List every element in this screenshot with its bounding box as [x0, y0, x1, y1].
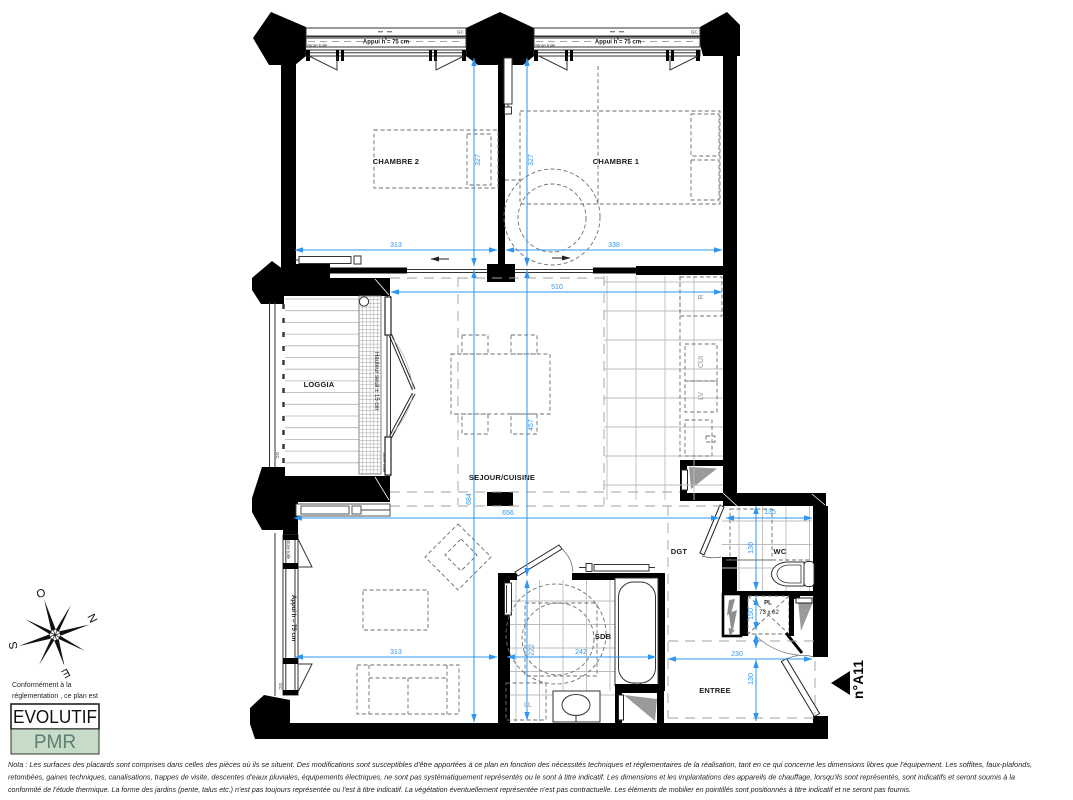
- svg-text:DGT: DGT: [671, 547, 688, 556]
- svg-text:Store toile: Store toile: [286, 539, 291, 560]
- svg-text:Store toile: Store toile: [307, 43, 328, 48]
- svg-text:R: R: [698, 294, 705, 299]
- svg-text:656: 656: [502, 510, 514, 517]
- svg-text:GC: GC: [275, 452, 280, 460]
- svg-text:327: 327: [528, 154, 535, 166]
- svg-text:Store toile: Store toile: [535, 43, 556, 48]
- svg-text:684: 684: [466, 493, 473, 505]
- svg-text:135: 135: [764, 509, 776, 516]
- svg-text:CHAMBRE 2: CHAMBRE 2: [373, 157, 419, 166]
- svg-text:SEJOUR/CUISINE: SEJOUR/CUISINE: [469, 473, 535, 482]
- svg-text:LL: LL: [524, 702, 532, 709]
- svg-text:LOGGIA: LOGGIA: [304, 380, 335, 389]
- svg-text:Conformément à la: Conformément à la: [12, 682, 72, 689]
- svg-text:EVOLUTIF: EVOLUTIF: [13, 707, 97, 727]
- svg-text:GC: GC: [457, 30, 465, 35]
- svg-text:150: 150: [748, 608, 755, 620]
- svg-text:WC: WC: [774, 547, 787, 556]
- svg-text:222: 222: [529, 644, 536, 656]
- svg-text:327: 327: [475, 154, 482, 166]
- svg-text:CUI: CUI: [698, 356, 705, 368]
- svg-text:Hauteur seuil ± 15 cm: Hauteur seuil ± 15 cm: [373, 352, 379, 410]
- svg-text:CHAMBRE 1: CHAMBRE 1: [593, 157, 639, 166]
- svg-text:Nota : Les surfaces des placar: Nota : Les surfaces des placards sont co…: [8, 760, 1032, 769]
- svg-text:conformité de l'étude thermiqu: conformité de l'étude thermique. La form…: [8, 785, 911, 794]
- svg-text:PL: PL: [764, 601, 772, 607]
- svg-text:Appui h = 75 cm: Appui h = 75 cm: [363, 40, 409, 46]
- svg-text:LV: LV: [698, 392, 705, 400]
- svg-text:SDB: SDB: [595, 632, 612, 641]
- svg-text:313: 313: [390, 649, 402, 656]
- svg-text:retombées, gaines techniques,: retombées, gaines techniques, canalisati…: [8, 773, 1015, 782]
- svg-text:ENTREE: ENTREE: [699, 686, 731, 695]
- svg-text:130: 130: [748, 542, 755, 554]
- svg-text:242: 242: [575, 649, 587, 656]
- svg-text:457: 457: [528, 419, 535, 431]
- svg-text:GC: GC: [691, 30, 699, 35]
- svg-text:313: 313: [390, 242, 402, 249]
- svg-text:73 x 62: 73 x 62: [759, 610, 779, 616]
- svg-text:Appui h = 75 cm: Appui h = 75 cm: [595, 40, 641, 46]
- svg-text:130: 130: [748, 673, 755, 685]
- svg-text:réglementation , ce plan est: réglementation , ce plan est: [12, 693, 98, 700]
- svg-text:510: 510: [551, 284, 563, 291]
- svg-text:PMR: PMR: [34, 732, 76, 753]
- svg-text:230: 230: [731, 651, 743, 658]
- svg-text:n°A11: n°A11: [851, 660, 866, 699]
- svg-text:Appui h = 75 cm: Appui h = 75 cm: [290, 595, 296, 641]
- svg-text:GC: GC: [278, 683, 283, 691]
- svg-text:338: 338: [608, 242, 620, 249]
